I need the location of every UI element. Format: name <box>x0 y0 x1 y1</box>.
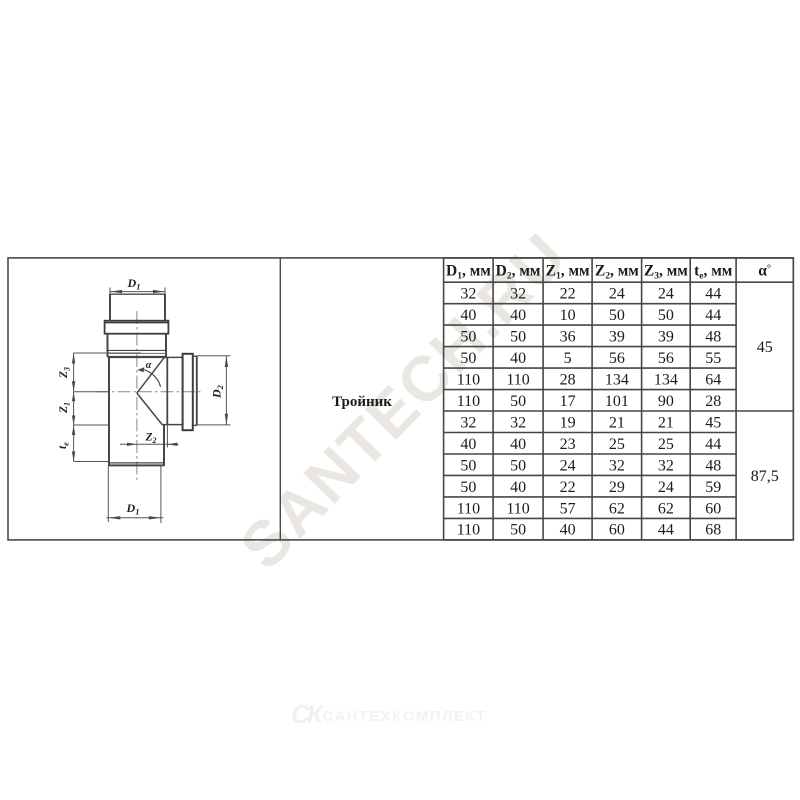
svg-text:22: 22 <box>560 286 576 303</box>
svg-text:50: 50 <box>460 329 476 346</box>
svg-text:25: 25 <box>609 436 625 453</box>
svg-text:α: α <box>146 360 152 371</box>
svg-text:64: 64 <box>705 371 721 388</box>
svg-text:10: 10 <box>560 307 576 324</box>
svg-text:5: 5 <box>564 350 572 367</box>
svg-text:29: 29 <box>609 479 625 496</box>
svg-text:32: 32 <box>658 457 674 474</box>
svg-text:62: 62 <box>658 500 674 517</box>
svg-text:23: 23 <box>560 436 576 453</box>
svg-text:50: 50 <box>609 307 625 324</box>
svg-text:110: 110 <box>457 522 480 539</box>
svg-text:Z3, мм: Z3, мм <box>644 263 688 282</box>
svg-text:134: 134 <box>654 371 678 388</box>
svg-text:45: 45 <box>757 339 773 356</box>
svg-text:44: 44 <box>658 522 674 539</box>
svg-text:40: 40 <box>510 479 526 496</box>
svg-text:110: 110 <box>506 371 529 388</box>
svg-text:СК: СК <box>291 699 325 729</box>
svg-text:110: 110 <box>457 500 480 517</box>
svg-text:90: 90 <box>658 393 674 410</box>
svg-text:56: 56 <box>609 350 625 367</box>
svg-text:Z1, мм: Z1, мм <box>546 263 590 282</box>
svg-text:Z2, мм: Z2, мм <box>595 263 639 282</box>
svg-text:21: 21 <box>609 414 625 431</box>
svg-text:Тройник: Тройник <box>332 394 392 410</box>
svg-text:17: 17 <box>560 393 576 410</box>
svg-text:21: 21 <box>658 414 674 431</box>
svg-text:44: 44 <box>705 307 721 324</box>
svg-text:44: 44 <box>705 436 721 453</box>
svg-text:50: 50 <box>510 393 526 410</box>
svg-text:22: 22 <box>560 479 576 496</box>
svg-text:24: 24 <box>560 457 576 474</box>
svg-text:36: 36 <box>560 329 576 346</box>
svg-text:25: 25 <box>658 436 674 453</box>
svg-text:50: 50 <box>460 457 476 474</box>
svg-text:28: 28 <box>560 371 576 388</box>
svg-text:50: 50 <box>510 457 526 474</box>
svg-text:110: 110 <box>506 500 529 517</box>
svg-text:24: 24 <box>658 479 674 496</box>
svg-text:40: 40 <box>560 522 576 539</box>
svg-text:48: 48 <box>705 457 721 474</box>
svg-text:32: 32 <box>609 457 625 474</box>
svg-text:68: 68 <box>705 522 721 539</box>
svg-text:D2, мм: D2, мм <box>496 263 541 282</box>
svg-text:40: 40 <box>510 350 526 367</box>
svg-text:57: 57 <box>560 500 576 517</box>
svg-text:87,5: 87,5 <box>751 468 779 485</box>
svg-text:39: 39 <box>658 329 674 346</box>
svg-text:50: 50 <box>510 329 526 346</box>
svg-text:32: 32 <box>510 286 526 303</box>
svg-text:60: 60 <box>609 522 625 539</box>
svg-text:32: 32 <box>460 286 476 303</box>
svg-text:110: 110 <box>457 371 480 388</box>
svg-text:40: 40 <box>510 307 526 324</box>
svg-text:32: 32 <box>510 414 526 431</box>
svg-text:24: 24 <box>658 286 674 303</box>
svg-text:39: 39 <box>609 329 625 346</box>
svg-text:D1, мм: D1, мм <box>446 263 491 282</box>
svg-text:56: 56 <box>658 350 674 367</box>
svg-text:55: 55 <box>705 350 721 367</box>
svg-text:134: 134 <box>605 371 629 388</box>
svg-text:28: 28 <box>705 393 721 410</box>
svg-text:40: 40 <box>460 307 476 324</box>
svg-text:50: 50 <box>460 350 476 367</box>
svg-text:24: 24 <box>609 286 625 303</box>
svg-text:50: 50 <box>510 522 526 539</box>
svg-text:62: 62 <box>609 500 625 517</box>
svg-text:40: 40 <box>460 436 476 453</box>
svg-text:44: 44 <box>705 286 721 303</box>
svg-text:32: 32 <box>460 414 476 431</box>
svg-text:19: 19 <box>560 414 576 431</box>
svg-text:101: 101 <box>605 393 629 410</box>
svg-text:40: 40 <box>510 436 526 453</box>
svg-text:50: 50 <box>460 479 476 496</box>
svg-text:110: 110 <box>457 393 480 410</box>
svg-text:45: 45 <box>705 414 721 431</box>
svg-text:САНТЕХКОМПЛЕКТ: САНТЕХКОМПЛЕКТ <box>323 708 487 725</box>
svg-text:50: 50 <box>658 307 674 324</box>
svg-text:59: 59 <box>705 479 721 496</box>
svg-text:60: 60 <box>705 500 721 517</box>
svg-text:48: 48 <box>705 329 721 346</box>
